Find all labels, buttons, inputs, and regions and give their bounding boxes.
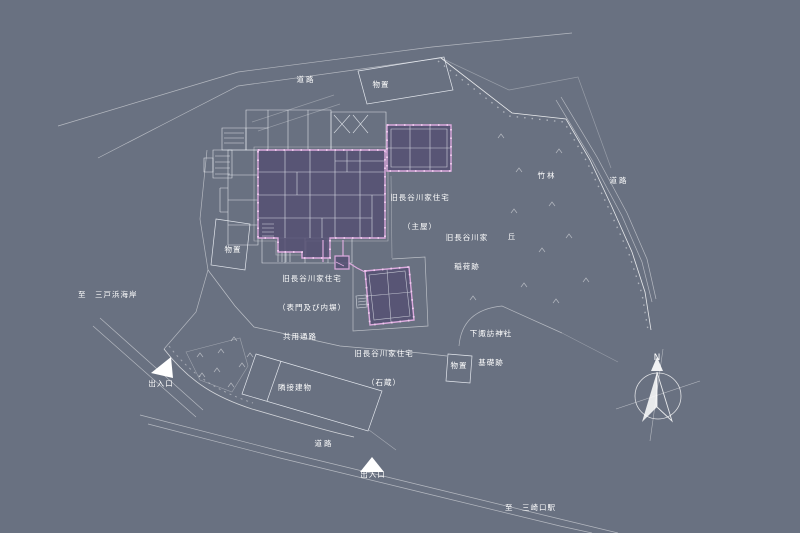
boundary-bamboo2 — [441, 58, 509, 90]
inner-fence — [349, 263, 365, 272]
label-shed-left: 物置 — [225, 245, 242, 255]
label-main-house-line2: （主屋） — [390, 222, 450, 232]
genkan-x-marks — [334, 115, 368, 133]
stair-wing2 — [213, 150, 232, 178]
label-shrine-foundation: 下諏訪神社 基礎跡 — [470, 309, 513, 377]
label-main-house: 旧長谷川家住宅 （主屋） — [390, 173, 450, 241]
boundary-adjacent-ext — [369, 430, 396, 450]
label-adjacent-building: 隣接建物 — [278, 383, 312, 393]
label-storehouse: 旧長谷川家住宅 （石蔵） — [354, 329, 414, 397]
road-right-edge1 — [556, 100, 652, 302]
label-entrance-west: 出入口 — [148, 379, 174, 389]
compass-needle-right — [657, 372, 672, 421]
boundary-court-curve — [164, 349, 354, 437]
storehouse-steps — [356, 295, 367, 308]
label-hill: 丘 — [508, 232, 517, 242]
label-entrance-south: 出入口 — [360, 470, 386, 480]
label-to-mitohama: 至 三戸浜海岸 — [78, 290, 138, 300]
label-shrine-line2: 基礎跡 — [470, 358, 513, 368]
boundary-east — [441, 58, 651, 330]
boundary-west — [164, 150, 208, 349]
compass-needle-left — [642, 372, 657, 422]
label-shrine-line1: 下諏訪神社 — [470, 329, 513, 339]
label-bamboo-grove: 竹林 — [538, 171, 557, 181]
road-top-hatch2 — [258, 104, 340, 131]
entrance-marker-west — [151, 357, 173, 378]
adjacent-building-divider — [267, 361, 281, 401]
label-inari-remains: 旧長谷川家 稲荷跡 — [446, 213, 489, 281]
road-coast-edge2 — [93, 326, 196, 417]
label-front-gate-line1: 旧長谷川家住宅 — [278, 274, 346, 284]
label-storehouse-line2: （石蔵） — [354, 378, 414, 388]
west-wing — [220, 150, 258, 245]
label-road-top: 道路 — [297, 75, 316, 85]
outbuildings — [211, 57, 472, 431]
label-inari-line1: 旧長谷川家 — [446, 233, 489, 243]
road-top-hatch1 — [252, 95, 334, 122]
north-wing-b — [331, 112, 386, 150]
label-shared-passage: 共用通路 — [283, 332, 317, 342]
site-plan: 道路 物置 竹林 道路 旧長谷川家住宅 （主屋） 旧長谷川家 稲荷跡 丘 物置 … — [0, 0, 800, 533]
north-wing-a — [246, 110, 331, 150]
planting-bed — [186, 338, 248, 392]
label-shed-east: 物置 — [451, 361, 468, 371]
compass-circle — [635, 373, 681, 419]
label-storehouse-line1: 旧長谷川家住宅 — [354, 349, 414, 359]
label-inari-line2: 稲荷跡 — [446, 262, 489, 272]
label-to-misakiguchi: 至 三崎口駅 — [505, 503, 556, 513]
site-plan-drawing — [0, 0, 800, 533]
road-coast-edge1 — [100, 318, 203, 410]
main-house-fill — [258, 150, 385, 258]
boundary-east-ticks — [438, 61, 648, 330]
stair-wing — [222, 128, 246, 150]
label-front-gate: 旧長谷川家住宅 （表門及び内塀） — [278, 254, 346, 322]
road-right-edge2 — [561, 97, 656, 299]
label-main-house-line1: 旧長谷川家住宅 — [390, 193, 450, 203]
boundary-court-ticks — [169, 346, 253, 403]
boundary-shrine-ext — [562, 333, 618, 362]
label-road-right: 道路 — [610, 176, 629, 186]
label-front-gate-line2: （表門及び内塀） — [278, 303, 346, 313]
storehouse-highlight — [356, 267, 414, 325]
label-shed-top: 物置 — [373, 80, 390, 90]
compass-north-label: N — [654, 353, 661, 365]
roads — [58, 33, 656, 533]
label-road-bottom: 道路 — [315, 439, 334, 449]
